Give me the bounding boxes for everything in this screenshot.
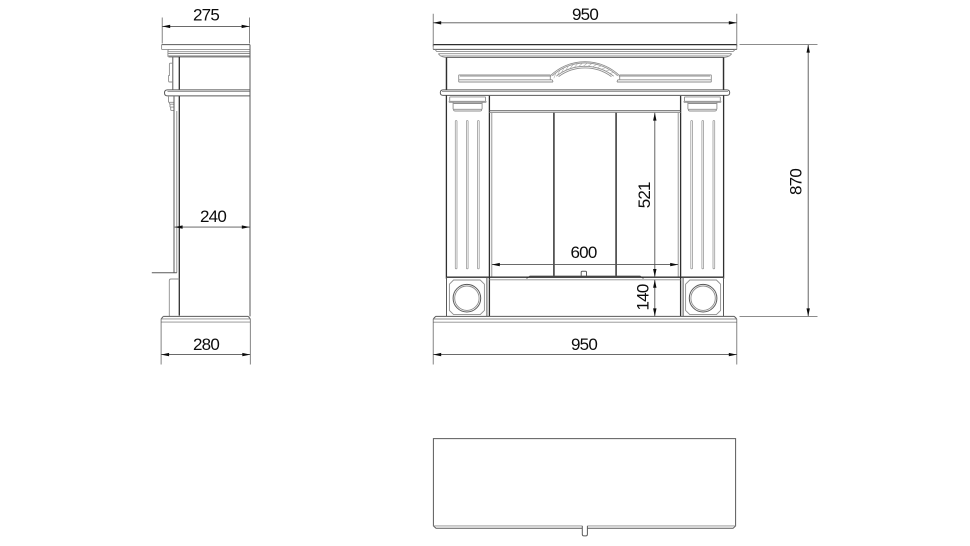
svg-text:521: 521	[635, 182, 654, 208]
svg-text:280: 280	[193, 335, 219, 354]
svg-text:950: 950	[571, 335, 597, 354]
svg-text:950: 950	[572, 5, 598, 24]
svg-text:275: 275	[193, 6, 219, 25]
svg-text:600: 600	[571, 243, 597, 262]
svg-text:140: 140	[634, 284, 653, 310]
svg-text:870: 870	[787, 169, 806, 195]
svg-text:240: 240	[200, 207, 226, 226]
